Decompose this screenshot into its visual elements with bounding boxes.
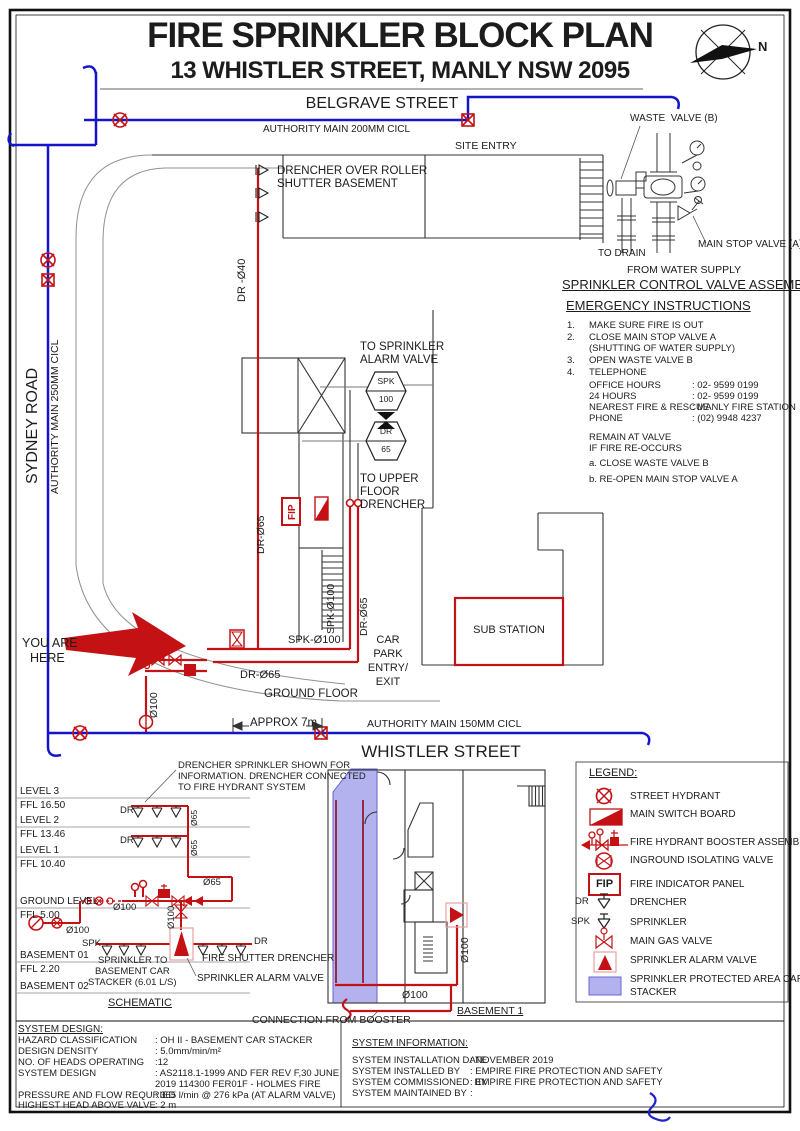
sd-value-4: : 365 l/min @ 276 kPa (AT ALARM VALVE)	[155, 1091, 336, 1102]
contact-label-3: PHONE	[589, 414, 623, 425]
sprinkler-protected-area	[333, 769, 377, 1003]
authority-main-200-label: AUTHORITY MAIN 200MM CICL	[263, 124, 410, 135]
legend-gas-valve: MAIN GAS VALVE	[630, 936, 712, 947]
spk100-h-label: SPK-Ø100	[288, 634, 341, 646]
legend-dr-prefix: DR	[575, 897, 589, 908]
step-a: a. CLOSE WASTE VALVE B	[589, 459, 709, 470]
protected-area-swatch	[589, 977, 621, 995]
dr40-label: DR -Ø40	[236, 259, 248, 302]
waste-valve-label: WASTE VALVE (B)	[630, 113, 718, 124]
emergency-item-4: TELEPHONE	[589, 368, 647, 379]
page-subtitle: 13 WHISTLER STREET, MANLY NSW 2095	[0, 58, 800, 85]
emergency-heading: EMERGENCY INSTRUCTIONS	[566, 299, 751, 314]
basement01-ffl: FFL 2.20	[20, 964, 60, 975]
spk-to-line3: STACKER (6.01 L/S)	[88, 978, 177, 989]
sprinkler-alarm-valve-icon	[594, 952, 616, 972]
spk-hex-top: SPK	[372, 377, 400, 387]
schem-dr-b: DR	[120, 836, 134, 847]
street-hydrant-icon	[597, 789, 612, 804]
remain-line2: IF FIRE RE-OCCURS	[589, 444, 682, 455]
authority-main-150-label: AUTHORITY MAIN 150MM CICL	[367, 719, 521, 731]
legend-fip: FIRE INDICATOR PANEL	[630, 879, 744, 890]
car-park-line1: CAR	[366, 634, 410, 646]
compass-n-label: N	[758, 40, 767, 55]
emergency-num-1: 1.	[567, 321, 575, 332]
car-park-line2: PARK	[366, 648, 410, 660]
ground-level-label: GROUND LEVEL	[20, 896, 98, 907]
fip-label: FIP	[287, 504, 298, 520]
to-alarm-line1: TO SPRINKLER	[360, 341, 444, 354]
valve-assembly-drawing	[607, 126, 706, 253]
emergency-item-2b: (SHUTTING OF WATER SUPPLY)	[589, 344, 735, 355]
sd-label-3: SYSTEM DESIGN	[18, 1069, 96, 1080]
dr-hex-top: DR	[372, 427, 400, 437]
ground-floor-label: GROUND FLOOR	[264, 688, 358, 701]
ground-level-ffl: FFL 5.00	[20, 910, 60, 921]
basement-dia100-v: Ø100	[460, 937, 472, 963]
drencher-note-line1: DRENCHER OVER ROLLER	[277, 165, 427, 178]
main-switch-board-icon	[315, 497, 328, 520]
drencher-note-line2: SHUTTER BASEMENT	[277, 178, 398, 191]
schem-o65-b: Ø65	[190, 840, 200, 856]
upper-drencher-line3: DRENCHER	[360, 499, 425, 512]
schem-alarm-label: SPRINKLER ALARM VALVE	[197, 973, 324, 984]
basement-dia100-h: Ø100	[402, 990, 428, 1002]
contact-value-3: : (02) 9948 4237	[692, 414, 762, 425]
schem-dr-a: DR	[120, 806, 134, 817]
you-are-here-line2: HERE	[30, 651, 65, 665]
emergency-num-3: 3.	[567, 356, 575, 367]
emergency-num-4: 4.	[567, 368, 575, 379]
main-stop-valve-label: MAIN STOP VALVE (A)	[698, 239, 800, 250]
main-switch-board-legend-icon	[590, 809, 622, 825]
legend-protected-area-line1: SPRINKLER PROTECTED AREA CAR	[630, 974, 800, 985]
fire-sprinkler-block-plan-page: { "header": { "title": "FIRE SPRINKLER B…	[0, 0, 800, 1131]
fire-shutter-label: FIRE SHUTTER DRENCHER	[202, 953, 334, 964]
car-park-line4: EXIT	[366, 676, 410, 688]
schem-o100-a: Ø100	[113, 903, 136, 914]
dr-hex-bottom: 65	[372, 445, 400, 455]
schem-o100-c: Ø100	[167, 906, 178, 929]
main-gas-valve-icon	[230, 630, 244, 648]
approx-7m-label: APPROX 7m	[250, 717, 317, 730]
connection-from-booster-label: CONNECTION FROM BOOSTER	[252, 1015, 411, 1027]
schematic-note-leader	[145, 770, 176, 802]
schematic-heading: SCHEMATIC	[108, 997, 172, 1009]
level3-label: LEVEL 3	[20, 786, 59, 797]
main-gas-valve-legend-icon	[596, 928, 612, 948]
si-value-2: : EMPIRE FIRE PROTECTION AND SAFETY	[470, 1078, 663, 1089]
basement1-label: BASEMENT 1	[457, 1006, 523, 1018]
spk-hex-bottom: 100	[372, 395, 400, 405]
spk100-vert-label: SPK-Ø100	[326, 584, 338, 634]
system-design-heading: SYSTEM DESIGN:	[18, 1024, 103, 1035]
system-info-heading: SYSTEM INFORMATION:	[352, 1038, 468, 1049]
schematic-heads	[102, 806, 246, 955]
schem-o65-c: Ø65	[203, 878, 221, 889]
sd-value-5: : 2 m	[155, 1101, 176, 1112]
sub-station-label: SUB STATION	[455, 624, 563, 636]
to-drain-label: TO DRAIN	[598, 248, 646, 259]
legend-inground-valve: INGROUND ISOLATING VALVE	[630, 855, 773, 866]
level1-label: LEVEL 1	[20, 845, 59, 856]
schem-o100-b: Ø100	[66, 926, 89, 937]
step-b: b. RE-OPEN MAIN STOP VALVE A	[589, 475, 738, 486]
to-alarm-line2: ALARM VALVE	[360, 354, 438, 367]
inground-valve-icon	[596, 853, 612, 869]
dia100-plan-label: Ø100	[149, 692, 161, 718]
legend-sprinkler: SPRINKLER	[630, 917, 687, 928]
sprinkler-icon	[598, 914, 610, 928]
booster-assembly-icon	[581, 829, 628, 850]
belgrave-street-label: BELGRAVE STREET	[282, 95, 482, 113]
schematic-note-line3: TO FIRE HYDRANT SYSTEM	[178, 783, 305, 794]
basement01-label: BASEMENT 01	[20, 950, 89, 961]
level3-ffl: FFL 16.50	[20, 800, 65, 811]
assembly-heading: SPRINKLER CONTROL VALVE ASSEMBLY	[562, 278, 800, 293]
emergency-item-3: OPEN WASTE VALVE B	[589, 356, 693, 367]
dr65-h-label: DR-Ø65	[240, 669, 280, 681]
si-label-3: SYSTEM MAINTAINED BY	[352, 1089, 467, 1100]
emergency-num-2: 2.	[567, 333, 575, 344]
authority-main-250-label: AUTHORITY MAIN 250MM CICL	[50, 340, 62, 494]
level1-ffl: FFL 10.40	[20, 859, 65, 870]
legend-booster: FIRE HYDRANT BOOSTER ASSEMBLY	[630, 837, 800, 848]
alarm-label-leader	[187, 958, 196, 976]
site-entry-label: SITE ENTRY	[455, 141, 517, 153]
legend-spk-prefix: SPK	[571, 917, 590, 928]
from-water-supply-label: FROM WATER SUPPLY	[627, 265, 741, 277]
legend-drencher: DRENCHER	[630, 897, 687, 908]
car-park-line3: ENTRY/	[366, 662, 410, 674]
dr65-vert-label: DR-Ø65	[359, 597, 371, 636]
upper-drencher-line1: TO UPPER	[360, 473, 419, 486]
si-value-3: :	[470, 1089, 473, 1100]
sydney-road-label: SYDNEY ROAD	[24, 368, 42, 484]
schem-o65-a: Ø65	[190, 810, 200, 826]
schem-dr-c: DR	[254, 937, 268, 948]
legend-fip-text: FIP	[589, 878, 620, 890]
emergency-item-1: MAKE SURE FIRE IS OUT	[589, 321, 704, 332]
basement02-label: BASEMENT 02	[20, 981, 89, 992]
level2-label: LEVEL 2	[20, 815, 59, 826]
sd-label-5: HIGHEST HEAD ABOVE VALVE	[18, 1101, 156, 1112]
you-are-here-line1: YOU ARE	[22, 636, 78, 650]
drencher-icon	[598, 894, 610, 908]
upper-drencher-line2: FLOOR	[360, 486, 400, 499]
schem-spk: SPK	[82, 939, 101, 950]
legend-heading: LEGEND:	[589, 767, 637, 779]
whistler-street-label: WHISTLER STREET	[341, 742, 541, 761]
dr65-left-label: DR-Ø65	[256, 515, 268, 554]
basement-alarm-valve-icon	[450, 907, 464, 923]
level2-ffl: FFL 13.46	[20, 829, 65, 840]
page-title: FIRE SPRINKLER BLOCK PLAN	[0, 16, 800, 55]
you-are-here-arrow	[64, 612, 186, 676]
legend-protected-area-line2: STACKER	[630, 987, 677, 998]
legend-street-hydrant: STREET HYDRANT	[630, 791, 720, 802]
legend-alarm-valve: SPRINKLER ALARM VALVE	[630, 955, 757, 966]
legend-main-switch-board: MAIN SWITCH BOARD	[630, 809, 736, 820]
